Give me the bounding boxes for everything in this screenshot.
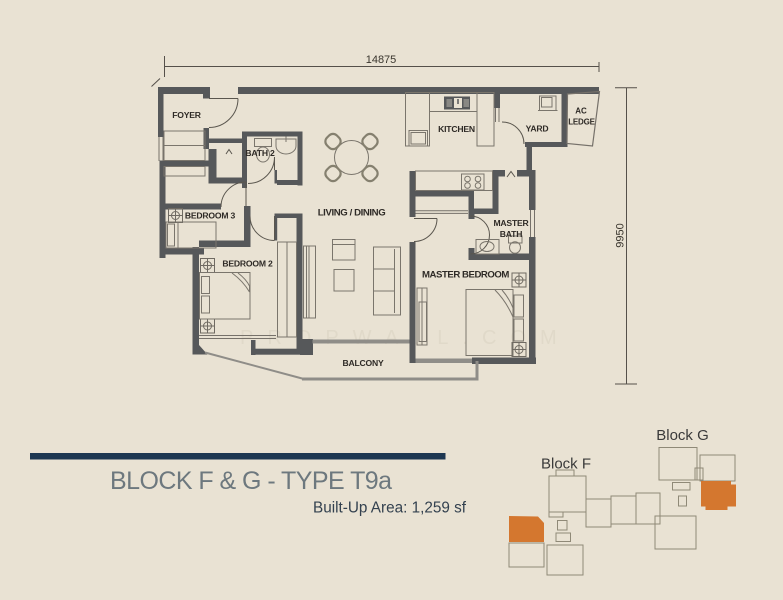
svg-text:AC: AC xyxy=(575,107,587,116)
svg-text:BEDROOM 3: BEDROOM 3 xyxy=(185,211,236,221)
svg-text:MASTER BEDROOM: MASTER BEDROOM xyxy=(422,270,509,281)
svg-text:BALCONY: BALCONY xyxy=(342,358,384,368)
svg-text:Block F: Block F xyxy=(541,456,591,473)
svg-text:BEDROOM 2: BEDROOM 2 xyxy=(222,259,273,269)
svg-text:YARD: YARD xyxy=(526,124,549,134)
svg-text:LEDGE: LEDGE xyxy=(568,118,595,127)
svg-text:LIVING / DINING: LIVING / DINING xyxy=(318,208,386,219)
svg-text:Block G: Block G xyxy=(656,427,709,444)
svg-text:Built-Up Area: 1,259 sf: Built-Up Area: 1,259 sf xyxy=(313,500,467,517)
svg-text:FOYER: FOYER xyxy=(172,110,202,120)
svg-text:BATH 2: BATH 2 xyxy=(245,148,275,158)
svg-text:MASTER: MASTER xyxy=(493,218,529,228)
svg-text:14875: 14875 xyxy=(366,54,397,66)
svg-text:BLOCK F & G - TYPE T9a: BLOCK F & G - TYPE T9a xyxy=(110,467,392,495)
svg-text:KITCHEN: KITCHEN xyxy=(438,124,475,134)
svg-text:9950: 9950 xyxy=(615,223,627,247)
svg-text:BATH: BATH xyxy=(500,229,522,239)
